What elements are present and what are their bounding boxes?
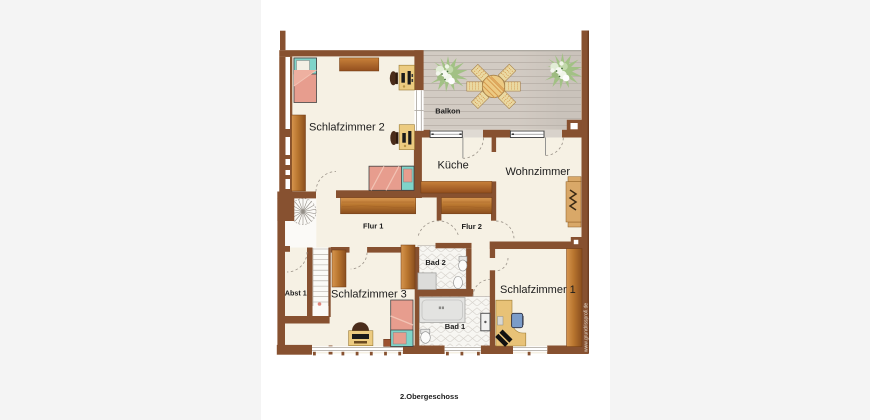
svg-text:www.grundrissprofi.de: www.grundrissprofi.de (584, 303, 590, 352)
svg-text:Küche: Küche (438, 160, 469, 172)
svg-text:Schlafzimmer 3: Schlafzimmer 3 (331, 289, 407, 301)
svg-text:Flur 1: Flur 1 (363, 222, 383, 231)
svg-text:Bad 2: Bad 2 (425, 258, 445, 267)
svg-text:Flur 2: Flur 2 (462, 222, 482, 231)
svg-text:2.Obergeschoss: 2.Obergeschoss (400, 392, 458, 401)
svg-text:Wohnzimmer: Wohnzimmer (506, 166, 571, 178)
svg-text:Bad 1: Bad 1 (445, 322, 465, 331)
svg-text:Schlafzimmer 1: Schlafzimmer 1 (500, 284, 576, 296)
svg-text:Abst 1: Abst 1 (285, 288, 307, 297)
svg-text:Balkon: Balkon (435, 106, 460, 115)
svg-text:Schlafzimmer 2: Schlafzimmer 2 (309, 122, 385, 134)
